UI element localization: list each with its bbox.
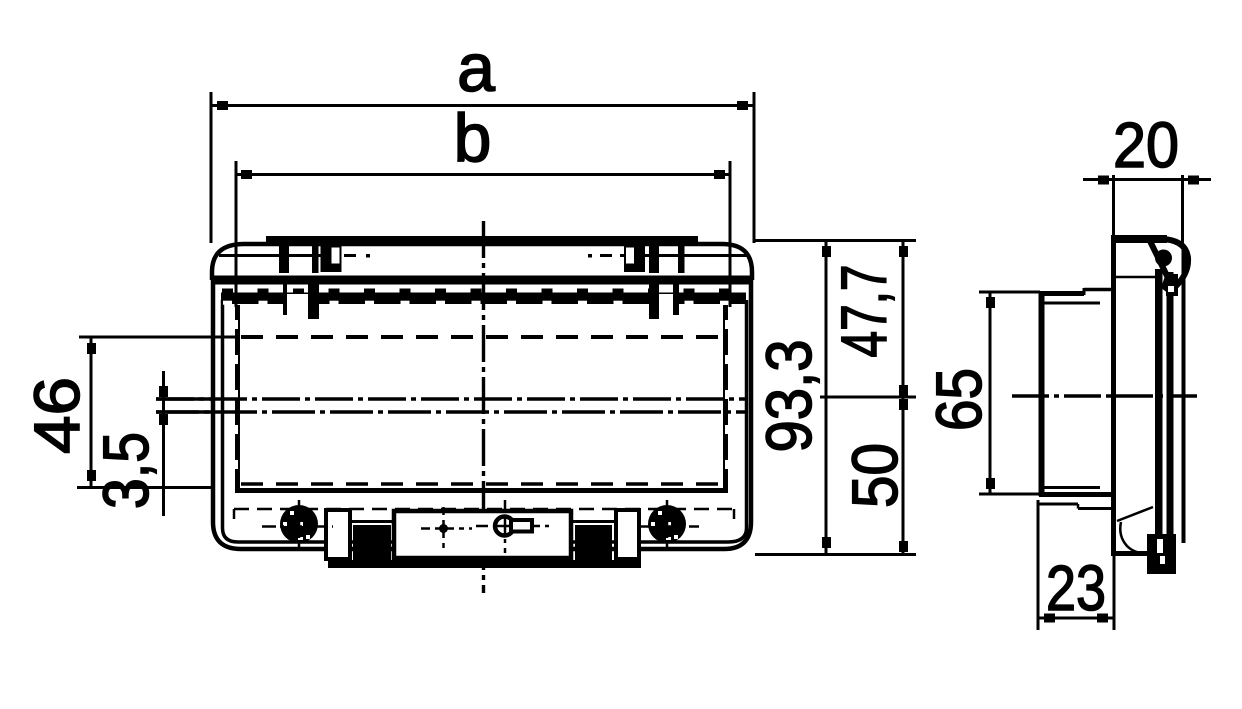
svg-text:50: 50 xyxy=(839,443,911,508)
svg-text:a: a xyxy=(457,30,495,106)
svg-text:20: 20 xyxy=(1113,109,1179,181)
svg-text:b: b xyxy=(454,100,492,176)
svg-text:3,5: 3,5 xyxy=(90,432,162,509)
svg-text:46: 46 xyxy=(21,377,93,454)
svg-text:23: 23 xyxy=(1046,552,1106,624)
svg-text:47,7: 47,7 xyxy=(828,265,900,358)
svg-text:93,3: 93,3 xyxy=(753,340,825,453)
svg-text:65: 65 xyxy=(923,368,995,431)
